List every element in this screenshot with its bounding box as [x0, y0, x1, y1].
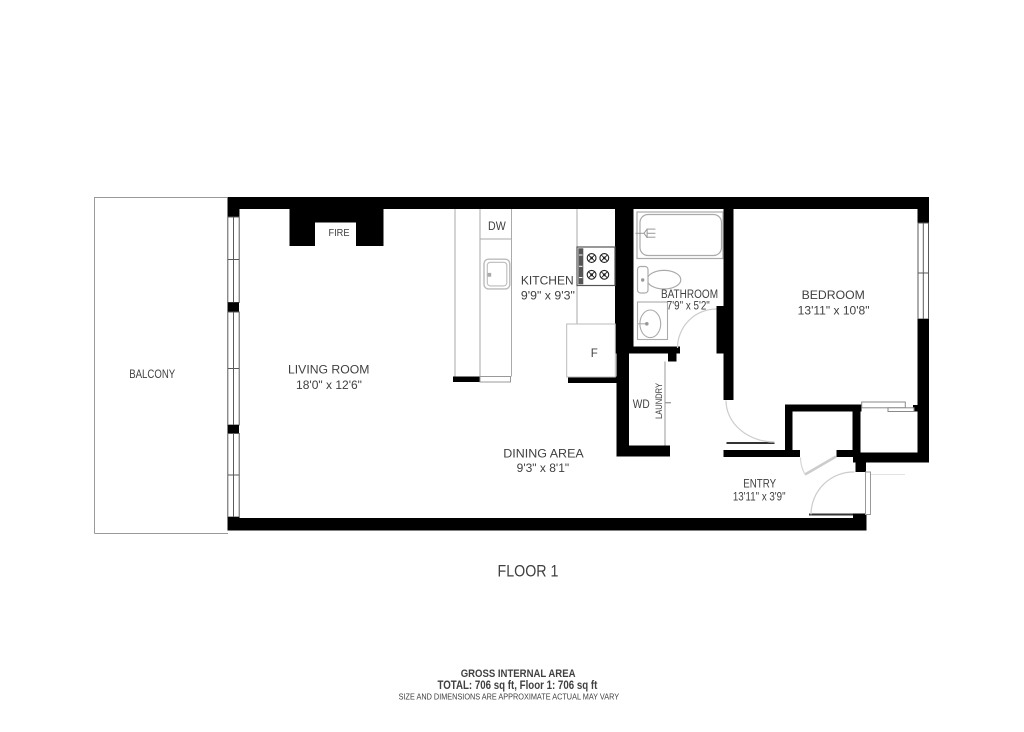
- svg-text:TOTAL: 706 sq ft, Floor 1: 706: TOTAL: 706 sq ft, Floor 1: 706 sq ft: [437, 680, 597, 692]
- svg-text:BEDROOM: BEDROOM: [802, 290, 865, 302]
- svg-text:KITCHEN: KITCHEN: [521, 275, 574, 287]
- svg-text:13'11" x 10'8": 13'11" x 10'8": [798, 305, 870, 317]
- svg-text:13'11" x 3'9": 13'11" x 3'9": [733, 491, 786, 503]
- svg-text:SIZE AND DIMENSIONS ARE APPROX: SIZE AND DIMENSIONS ARE APPROXIMATE ACTU…: [399, 692, 620, 702]
- svg-text:FIRE: FIRE: [328, 228, 350, 239]
- svg-text:BATHROOM: BATHROOM: [661, 289, 718, 301]
- svg-text:7'9" x 5'2": 7'9" x 5'2": [667, 301, 710, 313]
- svg-text:LIVING ROOM: LIVING ROOM: [288, 365, 369, 377]
- svg-text:FLOOR 1: FLOOR 1: [498, 562, 559, 581]
- svg-text:9'3" x 8'1": 9'3" x 8'1": [517, 463, 570, 475]
- svg-text:9'9" x 9'3": 9'9" x 9'3": [521, 290, 575, 302]
- svg-text:DINING AREA: DINING AREA: [503, 449, 584, 461]
- svg-text:DW: DW: [488, 221, 506, 233]
- svg-text:BALCONY: BALCONY: [129, 369, 175, 381]
- svg-text:WD: WD: [633, 399, 650, 411]
- svg-text:GROSS INTERNAL AREA: GROSS INTERNAL AREA: [461, 668, 576, 680]
- svg-text:F: F: [591, 348, 598, 360]
- svg-text:ENTRY: ENTRY: [743, 479, 776, 491]
- svg-text:LAUNDRY: LAUNDRY: [654, 383, 664, 419]
- svg-text:18'0" x 12'6": 18'0" x 12'6": [296, 380, 362, 392]
